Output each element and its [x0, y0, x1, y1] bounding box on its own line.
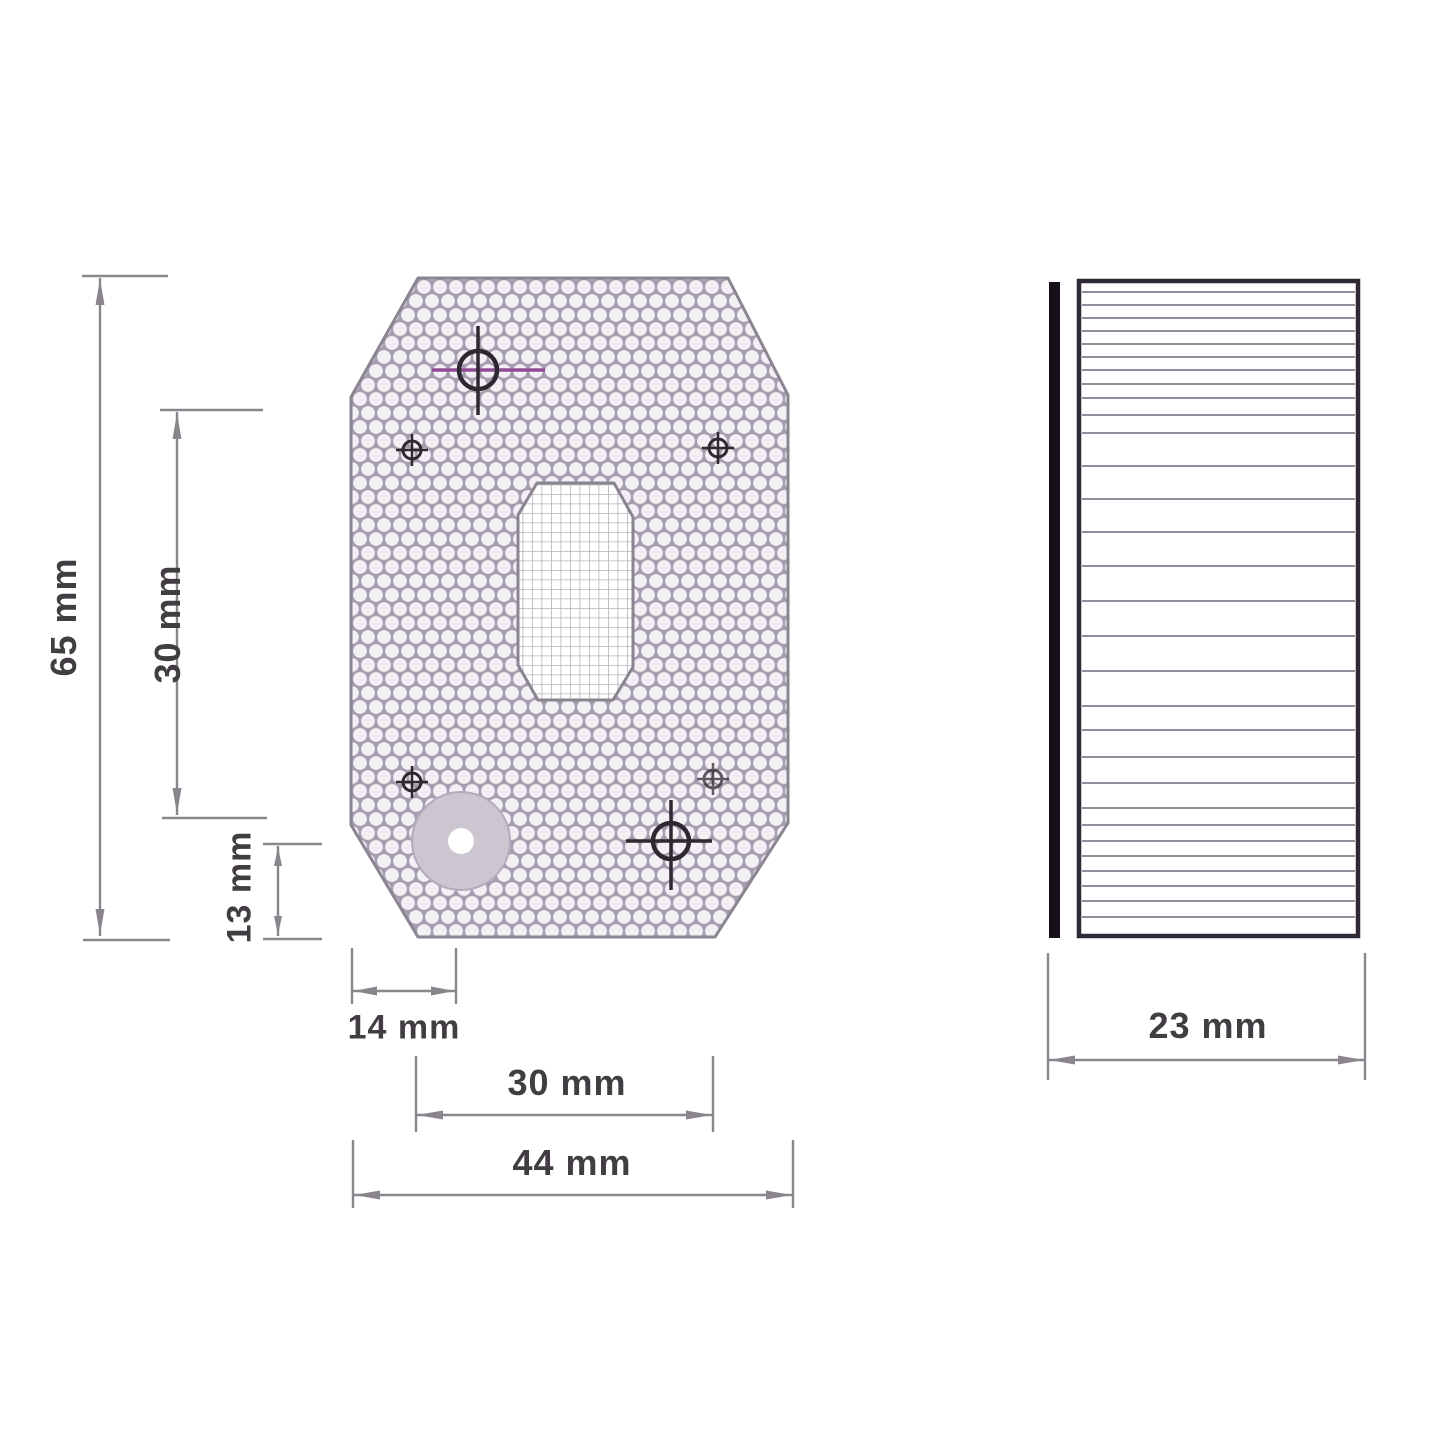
- front-view: [351, 278, 788, 937]
- side-view: [1049, 281, 1358, 938]
- dim-label-hole-spacing-vertical: 30 mm: [147, 564, 189, 683]
- dim-label-disc-from-left: 14 mm: [348, 1009, 461, 1048]
- oval-cutout: [518, 483, 633, 700]
- disc-center-hole: [448, 828, 474, 854]
- side-mount-strip: [1049, 282, 1060, 938]
- dim-label-hole-spacing-horizontal: 30 mm: [507, 1062, 626, 1104]
- dimension-disc-from-left: [352, 948, 456, 1004]
- dim-label-overall-height: 65 mm: [43, 557, 85, 676]
- disc: [412, 792, 510, 890]
- dim-label-overall-depth: 23 mm: [1148, 1005, 1267, 1047]
- dim-label-overall-width: 44 mm: [512, 1142, 631, 1184]
- technical-drawing-page: 65 mm 30 mm 13 mm 14 mm 30 mm 44 mm 23 m…: [0, 0, 1445, 1445]
- dim-label-disc-from-bottom: 13 mm: [221, 831, 260, 944]
- dimension-disc-from-bottom: [263, 844, 322, 939]
- side-body: [1079, 281, 1358, 936]
- drawing-geometry: [0, 0, 1445, 1445]
